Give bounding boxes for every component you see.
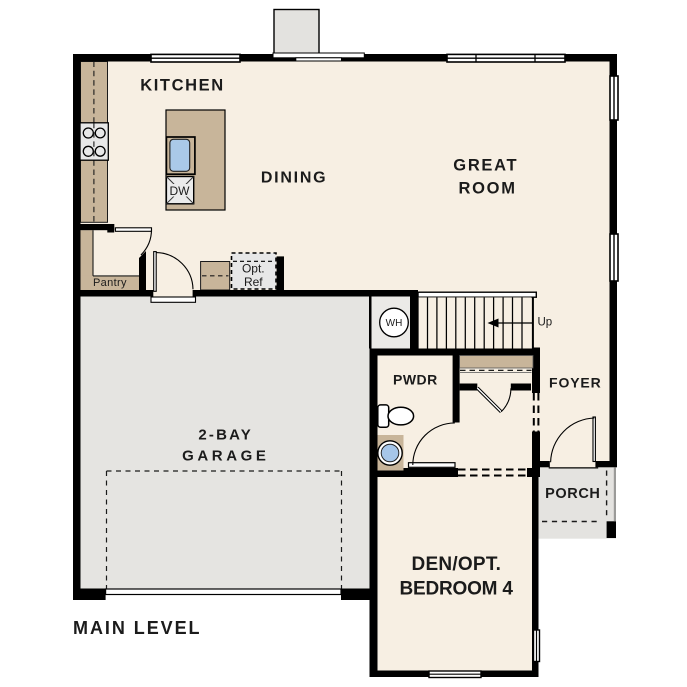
- svg-text:2-BAY: 2-BAY: [198, 427, 253, 444]
- svg-text:DINING: DINING: [261, 169, 328, 186]
- svg-text:KITCHEN: KITCHEN: [140, 76, 225, 94]
- svg-text:Pantry: Pantry: [93, 277, 127, 289]
- svg-text:Ref: Ref: [244, 275, 263, 289]
- svg-text:Up: Up: [538, 317, 553, 329]
- svg-text:GARAGE: GARAGE: [182, 448, 269, 465]
- svg-text:DW: DW: [170, 184, 191, 198]
- svg-text:PWDR: PWDR: [393, 372, 438, 388]
- svg-text:MAIN LEVEL: MAIN LEVEL: [73, 618, 202, 638]
- svg-text:PORCH: PORCH: [545, 486, 600, 502]
- svg-text:ROOM: ROOM: [459, 179, 517, 197]
- svg-text:DEN/OPT.: DEN/OPT.: [411, 554, 501, 575]
- svg-text:WH: WH: [386, 318, 403, 329]
- svg-text:Opt.: Opt.: [242, 262, 265, 276]
- svg-text:BEDROOM 4: BEDROOM 4: [399, 578, 513, 599]
- svg-text:FOYER: FOYER: [549, 374, 601, 390]
- svg-text:GREAT: GREAT: [453, 157, 518, 175]
